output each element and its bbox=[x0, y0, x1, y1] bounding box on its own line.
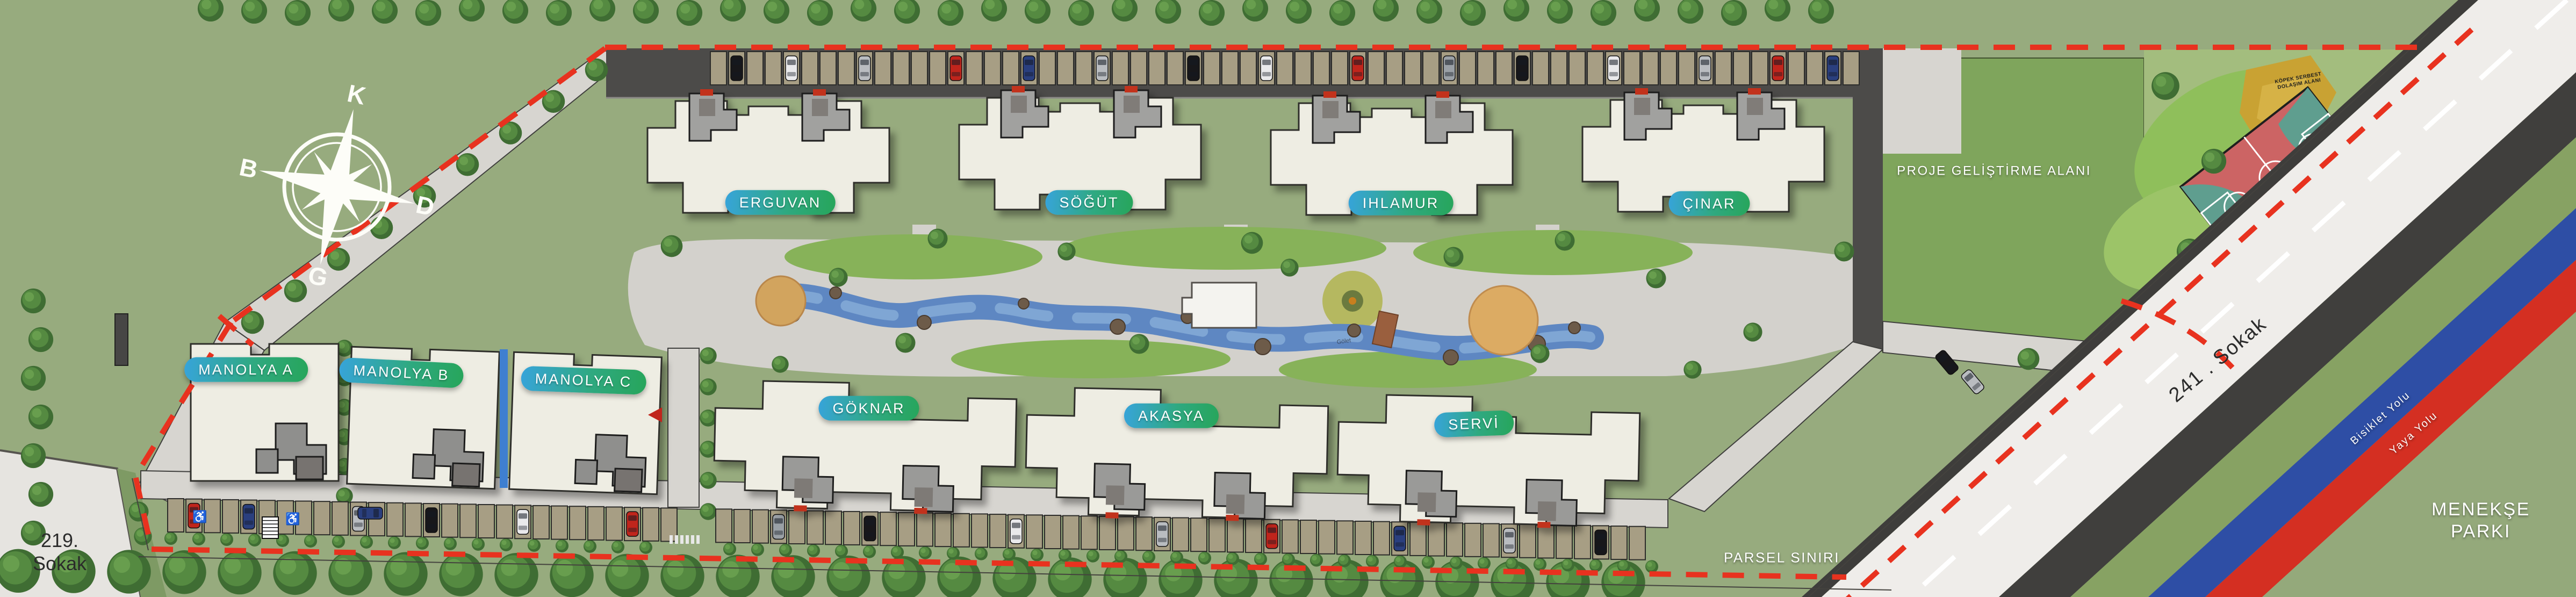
parking-stall bbox=[1332, 52, 1348, 85]
parking-stall bbox=[570, 506, 586, 540]
tree-icon bbox=[416, 537, 429, 550]
tree-icon bbox=[360, 536, 373, 549]
car-icon bbox=[358, 507, 383, 519]
label-akasya: AKASYA bbox=[1124, 404, 1219, 428]
tree-icon bbox=[584, 540, 596, 553]
tree-icon bbox=[556, 540, 569, 552]
tree-icon bbox=[1031, 549, 1044, 562]
tree-icon bbox=[220, 533, 233, 546]
round-plaza-west bbox=[756, 276, 805, 326]
tree-icon bbox=[1394, 555, 1407, 568]
parking-stall bbox=[1172, 518, 1189, 551]
parking-stall bbox=[1465, 523, 1481, 557]
car-icon bbox=[1608, 56, 1620, 81]
accessible-parking-icon: ♿ bbox=[192, 510, 207, 523]
parking-stall bbox=[1642, 52, 1658, 85]
tree-icon bbox=[370, 216, 393, 239]
label-cinar: ÇINAR bbox=[1668, 191, 1750, 216]
parking-stall bbox=[930, 52, 946, 85]
crosswalk-tick bbox=[691, 535, 694, 544]
parking-stall bbox=[1277, 52, 1293, 85]
label-erguvan: ERGUVAN bbox=[725, 190, 836, 215]
social-facility bbox=[1182, 283, 1256, 328]
tree-icon bbox=[700, 503, 716, 520]
tree-icon bbox=[439, 552, 483, 596]
parking-stall bbox=[802, 52, 818, 85]
tree-icon bbox=[661, 235, 683, 257]
parking-stall bbox=[1520, 524, 1536, 558]
parking-stall bbox=[1428, 523, 1444, 556]
parking-stall bbox=[893, 52, 909, 85]
tree-icon bbox=[938, 0, 963, 26]
parking-stall bbox=[752, 510, 768, 543]
tree-icon bbox=[284, 279, 307, 303]
gate-house bbox=[115, 314, 128, 365]
car-icon bbox=[1261, 56, 1272, 81]
label-servi: SERVİ bbox=[1434, 410, 1514, 438]
tree-icon bbox=[1170, 551, 1183, 564]
manolya-access-road bbox=[668, 348, 699, 507]
crosswalk-tick bbox=[670, 535, 673, 544]
parking-stall bbox=[606, 507, 622, 541]
parking-stall bbox=[935, 513, 951, 546]
car-icon bbox=[243, 505, 255, 529]
tree-icon bbox=[1460, 0, 1486, 26]
tree-icon bbox=[28, 482, 53, 507]
parking-stall bbox=[222, 500, 239, 533]
tree-icon bbox=[947, 547, 960, 560]
tree-icon bbox=[723, 543, 736, 556]
tree-icon bbox=[1086, 550, 1099, 563]
parking-stall bbox=[990, 514, 1006, 548]
tree-icon bbox=[164, 532, 177, 545]
tree-icon bbox=[550, 553, 593, 597]
parking-stall bbox=[1295, 52, 1311, 85]
parking-stall bbox=[1410, 522, 1426, 556]
tree-icon bbox=[1645, 560, 1658, 573]
tree-icon bbox=[1310, 553, 1323, 566]
car-icon bbox=[1827, 56, 1839, 81]
parking-stall bbox=[442, 504, 458, 537]
parking-stall bbox=[765, 52, 781, 85]
label-manolya-a: MANOLYA A bbox=[184, 357, 308, 382]
parking-stall bbox=[1569, 52, 1585, 85]
label-parcel-boundary: PARSEL SINIRI bbox=[1724, 549, 1840, 566]
car-icon bbox=[1443, 56, 1455, 81]
tree-icon bbox=[896, 333, 916, 353]
tree-icon bbox=[1562, 558, 1574, 571]
tree-icon bbox=[605, 554, 649, 597]
car-icon bbox=[1266, 524, 1278, 549]
tree-icon bbox=[829, 268, 847, 286]
tree-icon bbox=[218, 551, 261, 594]
parking-stall bbox=[972, 514, 988, 547]
tree-icon bbox=[1683, 361, 1701, 378]
parking-stall bbox=[1026, 515, 1042, 548]
parking-stall bbox=[1240, 52, 1256, 85]
tree-icon bbox=[1422, 556, 1435, 569]
tree-icon bbox=[2152, 72, 2179, 100]
tree-icon bbox=[779, 544, 792, 557]
parking-stall bbox=[1282, 520, 1298, 553]
tree-icon bbox=[1254, 553, 1267, 566]
parking-stall bbox=[820, 52, 836, 85]
car-icon bbox=[1503, 528, 1515, 553]
tree-icon bbox=[456, 153, 479, 176]
tree-icon bbox=[975, 548, 988, 560]
tree-icon bbox=[863, 545, 876, 558]
parking-stall bbox=[588, 507, 604, 540]
car-icon bbox=[1023, 56, 1035, 81]
parking-stall bbox=[1081, 516, 1097, 549]
parking-stall bbox=[1386, 52, 1402, 85]
tree-icon bbox=[528, 539, 541, 552]
parking-stall bbox=[1447, 523, 1463, 556]
parking-stall bbox=[1118, 517, 1134, 550]
tree-icon bbox=[2201, 149, 2226, 174]
tree-icon bbox=[1743, 322, 1762, 341]
accessible-parking-icon: ♿ bbox=[285, 512, 300, 526]
label-ihlamur: IHLAMUR bbox=[1349, 191, 1454, 215]
label-menekse-line2: PARKI bbox=[2431, 521, 2530, 543]
parking-stall bbox=[478, 505, 494, 538]
parking-stall bbox=[1478, 52, 1494, 85]
crosswalk-tick bbox=[680, 535, 683, 544]
tree-icon bbox=[2018, 348, 2040, 370]
parking-stall bbox=[1112, 52, 1128, 85]
car-icon bbox=[1772, 56, 1784, 81]
tree-icon bbox=[21, 366, 46, 391]
tree-icon bbox=[1534, 558, 1546, 571]
tree-icon bbox=[700, 347, 716, 364]
label-goknar: GÖKNAR bbox=[818, 396, 919, 421]
tree-icon bbox=[1530, 344, 1549, 363]
tree-icon bbox=[1226, 552, 1239, 565]
parking-stall bbox=[1076, 52, 1092, 85]
site-plan-svg: ♿♿ bbox=[0, 0, 2576, 597]
parking-stall bbox=[747, 52, 763, 85]
tree-icon bbox=[415, 0, 441, 26]
parking-stall bbox=[734, 509, 750, 543]
parking-stall bbox=[1532, 52, 1549, 85]
tree-icon bbox=[677, 0, 702, 26]
parking-stall bbox=[1209, 519, 1225, 552]
parking-stall bbox=[533, 506, 549, 539]
tree-icon bbox=[1199, 0, 1225, 26]
parking-stall bbox=[716, 509, 732, 542]
car-icon bbox=[773, 514, 785, 539]
parking-stall bbox=[844, 512, 860, 545]
parking-stall bbox=[1629, 527, 1645, 560]
tree-icon bbox=[1444, 247, 1464, 267]
tree-icon bbox=[700, 409, 716, 426]
tree-icon bbox=[751, 543, 764, 556]
tree-icon bbox=[1198, 552, 1211, 565]
tree-icon bbox=[1142, 551, 1155, 564]
parking-stall bbox=[807, 511, 823, 544]
parking-stall bbox=[551, 506, 567, 540]
parking-stall bbox=[1204, 52, 1220, 85]
parking-stall bbox=[838, 52, 854, 85]
label-project-area: PROJE GELİŞTİRME ALANI bbox=[1897, 164, 2091, 179]
tree-icon bbox=[273, 551, 316, 595]
parking-stall bbox=[984, 52, 1001, 85]
tree-icon bbox=[807, 544, 820, 557]
parking-stall bbox=[1788, 52, 1804, 85]
tree-icon bbox=[1003, 548, 1016, 561]
parking-stall bbox=[314, 501, 330, 535]
parking-stall bbox=[1313, 52, 1329, 85]
parking-stall bbox=[1538, 524, 1554, 558]
tree-icon bbox=[1834, 242, 1854, 262]
car-icon bbox=[731, 56, 743, 81]
tree-icon bbox=[1129, 334, 1149, 354]
parking-stall bbox=[1003, 52, 1019, 85]
northeast-plaza bbox=[1883, 48, 1961, 154]
crosswalk-tick bbox=[686, 535, 689, 544]
tree-icon bbox=[1589, 559, 1602, 572]
tree-icon bbox=[1617, 559, 1630, 572]
parking-stall bbox=[1045, 515, 1061, 549]
tree-icon bbox=[1057, 242, 1075, 260]
car-icon bbox=[1156, 522, 1168, 546]
tree-icon bbox=[1450, 556, 1463, 569]
tree-icon bbox=[1282, 553, 1295, 566]
parking-stall bbox=[1167, 52, 1183, 85]
tree-icon bbox=[1059, 549, 1071, 562]
tree-icon bbox=[546, 0, 572, 26]
parking-stall bbox=[1222, 52, 1238, 85]
car-icon bbox=[1096, 56, 1108, 81]
tree-icon bbox=[28, 405, 53, 429]
parking-stall bbox=[1319, 521, 1335, 554]
car-icon bbox=[1010, 519, 1022, 544]
tree-icon bbox=[328, 552, 372, 595]
tree-icon bbox=[304, 535, 317, 548]
parking-stall bbox=[953, 514, 969, 547]
parking-stall bbox=[966, 52, 982, 85]
round-plaza-east bbox=[1469, 286, 1538, 355]
tree-icon bbox=[285, 0, 311, 26]
parking-stall bbox=[1057, 52, 1074, 85]
parking-stall bbox=[1587, 52, 1603, 85]
tree-icon bbox=[444, 537, 457, 550]
parking-stall bbox=[898, 513, 915, 546]
parking-stall bbox=[875, 52, 891, 85]
crosswalk-tick bbox=[675, 535, 678, 544]
label-manolya-c: MANOLYA C bbox=[521, 366, 646, 395]
tree-icon bbox=[1366, 555, 1379, 567]
parking-stall bbox=[789, 510, 805, 544]
parking-stall bbox=[1227, 519, 1243, 552]
parking-stall bbox=[460, 504, 476, 537]
car-icon bbox=[950, 56, 962, 81]
label-sogut: SÖĞÜT bbox=[1045, 190, 1133, 215]
tree-icon bbox=[1646, 269, 1666, 289]
parking-stall bbox=[1496, 52, 1512, 85]
parking-stall bbox=[1191, 518, 1207, 551]
parking-stall bbox=[387, 503, 403, 536]
site-plan-page: { "compass": { "north_label": "K", "east… bbox=[0, 0, 2576, 597]
tree-icon bbox=[928, 229, 948, 249]
parking-stall bbox=[168, 499, 184, 532]
tree-icon bbox=[660, 554, 704, 597]
car-icon bbox=[859, 56, 870, 81]
parking-stall bbox=[1423, 52, 1439, 85]
tree-icon bbox=[807, 0, 833, 26]
car-icon bbox=[786, 56, 797, 81]
parking-stall bbox=[1136, 517, 1152, 550]
parking-stall bbox=[1611, 526, 1627, 559]
tree-icon bbox=[700, 472, 716, 488]
label-street-219-line1: 219. bbox=[33, 529, 87, 552]
tree-icon bbox=[639, 541, 652, 554]
parking-stall bbox=[1063, 516, 1079, 549]
tree-icon bbox=[332, 535, 345, 548]
parking-stall bbox=[1715, 52, 1731, 85]
parking-stall bbox=[1679, 52, 1695, 85]
parking-stall bbox=[1556, 525, 1572, 558]
parking-stall bbox=[1624, 52, 1640, 85]
label-menekse-line1: MENEKŞE bbox=[2431, 499, 2530, 521]
tree-icon bbox=[611, 541, 624, 553]
car-icon bbox=[426, 508, 437, 533]
parking-stall bbox=[1660, 52, 1676, 85]
tree-icon bbox=[1241, 232, 1263, 254]
parking-stall bbox=[1752, 52, 1768, 85]
tree-icon bbox=[500, 538, 513, 551]
car-icon bbox=[517, 509, 529, 534]
label-street-219: 219. Sokak bbox=[33, 529, 87, 575]
parking-stall bbox=[661, 508, 677, 541]
tree-icon bbox=[384, 552, 427, 595]
tree-icon bbox=[1068, 0, 1094, 26]
tree-icon bbox=[891, 546, 904, 559]
tree-icon bbox=[1280, 258, 1298, 276]
parking-stall bbox=[1574, 526, 1591, 559]
parking-stall bbox=[1131, 52, 1147, 85]
parking-stall bbox=[1733, 52, 1750, 85]
tree-icon bbox=[192, 533, 205, 545]
crosswalk-tick bbox=[696, 535, 700, 544]
parking-stall bbox=[1149, 52, 1165, 85]
parking-stall bbox=[1551, 52, 1567, 85]
tree-icon bbox=[835, 545, 848, 558]
tree-icon bbox=[1721, 0, 1747, 26]
parking-stall bbox=[710, 52, 726, 85]
car-icon bbox=[1595, 530, 1607, 555]
parking-stall bbox=[1459, 52, 1476, 85]
parking-stall bbox=[332, 502, 348, 535]
lap-pool-strip bbox=[500, 349, 508, 488]
parking-stall bbox=[1355, 521, 1371, 555]
tree-icon bbox=[1506, 557, 1519, 570]
tree-icon bbox=[21, 443, 46, 468]
parking-stall bbox=[643, 508, 659, 541]
tree-icon bbox=[772, 356, 788, 372]
tree-icon bbox=[21, 289, 46, 313]
label-street-219-line2: Sokak bbox=[33, 552, 87, 575]
parking-stall bbox=[1337, 521, 1353, 554]
car-icon bbox=[627, 512, 638, 536]
parking-stall bbox=[1807, 52, 1823, 85]
car-icon bbox=[864, 516, 876, 541]
tree-icon bbox=[248, 534, 261, 546]
parking-stall bbox=[825, 511, 841, 544]
car-icon bbox=[1352, 56, 1364, 81]
car-icon bbox=[1699, 56, 1711, 81]
parking-stall bbox=[1373, 522, 1390, 555]
car-icon bbox=[1394, 526, 1406, 551]
parking-stall bbox=[1039, 52, 1055, 85]
parking-stall bbox=[1099, 516, 1116, 550]
parking-stall bbox=[1368, 52, 1384, 85]
parking-stall bbox=[1246, 519, 1262, 552]
tree-icon bbox=[472, 538, 485, 551]
label-menekse-park: MENEKŞE PARKI bbox=[2431, 499, 2530, 543]
car-icon bbox=[1188, 56, 1199, 81]
parking-stall bbox=[1843, 52, 1859, 85]
parking-stall bbox=[1405, 52, 1421, 85]
parking-stall bbox=[911, 52, 927, 85]
tree-icon bbox=[700, 378, 716, 395]
tree-icon bbox=[1555, 231, 1575, 251]
parking-stall bbox=[405, 503, 421, 536]
tree-icon bbox=[1338, 554, 1351, 567]
parking-stall bbox=[1483, 524, 1499, 557]
stairs-icon bbox=[262, 517, 278, 538]
parking-stall bbox=[497, 505, 513, 538]
parking-stall bbox=[1300, 520, 1316, 553]
car-icon bbox=[1516, 56, 1528, 81]
parking-stall bbox=[917, 513, 933, 546]
tree-icon bbox=[494, 553, 538, 596]
east-service-road bbox=[1853, 48, 1883, 350]
tree-icon bbox=[388, 536, 401, 549]
tree-icon bbox=[1591, 0, 1616, 26]
tree-icon bbox=[28, 327, 53, 352]
tree-icon bbox=[1114, 550, 1127, 563]
tree-icon bbox=[919, 546, 932, 559]
parking-stall bbox=[880, 512, 896, 545]
tree-icon bbox=[1478, 557, 1491, 570]
tree-icon bbox=[1329, 0, 1355, 26]
